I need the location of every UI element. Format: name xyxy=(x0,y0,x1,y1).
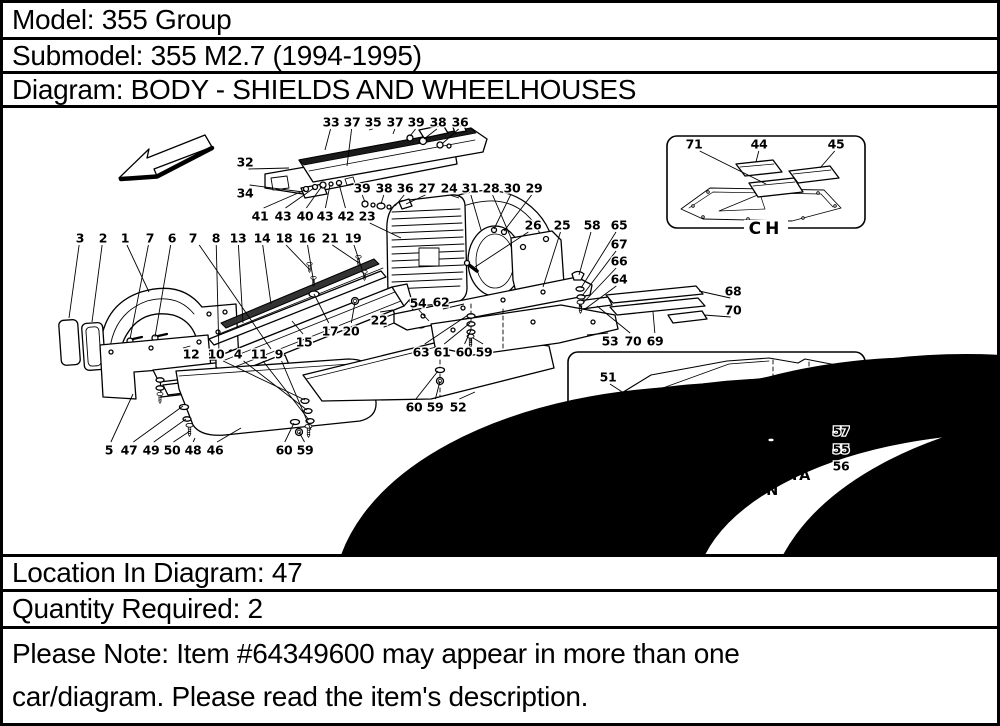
callout-54: 54 xyxy=(410,296,427,311)
callout-68: 68 xyxy=(725,284,742,299)
note-row: Please Note: Item #64349600 may appear i… xyxy=(3,629,997,723)
callout-43: 43 xyxy=(275,209,292,224)
diagram-title-text: Diagram: BODY - SHIELDS AND WHEELHOUSES xyxy=(12,74,636,106)
callout-30: 30 xyxy=(504,181,521,196)
callout-56: 56 xyxy=(833,459,850,474)
callout-29: 29 xyxy=(526,181,543,196)
callout-26: 26 xyxy=(525,218,542,233)
callout-23: 23 xyxy=(359,209,376,224)
callout-64: 64 xyxy=(611,272,628,287)
callout-53: 53 xyxy=(602,334,619,349)
callout-66: 66 xyxy=(611,254,628,269)
callout-22: 22 xyxy=(371,313,388,328)
callout-33: 33 xyxy=(323,115,340,130)
callout-39: 39 xyxy=(354,181,371,196)
catalog-page: Model: 355 Group Submodel: 355 M2.7 (199… xyxy=(0,0,1000,726)
note-text-line2: car/diagram. Please read the item's desc… xyxy=(12,675,997,718)
callout-55: 55 xyxy=(833,442,850,457)
callout-52: 52 xyxy=(450,400,467,415)
callout-7: 7 xyxy=(189,231,197,246)
model-text: Model: 355 Group xyxy=(12,4,231,36)
callout-70: 70 xyxy=(725,303,742,318)
callout-48: 48 xyxy=(185,443,202,458)
callout-32: 32 xyxy=(237,155,254,170)
callout-15: 15 xyxy=(296,335,313,350)
submodel-text: Submodel: 355 M2.7 (1994-1995) xyxy=(12,40,422,72)
callout-43: 43 xyxy=(317,209,334,224)
quantity-row: Quantity Required: 2 xyxy=(3,592,997,629)
callout-70: 70 xyxy=(625,334,642,349)
callout-50: 50 xyxy=(164,443,181,458)
callout-31: 31 xyxy=(462,181,479,196)
callout-34: 34 xyxy=(237,186,254,201)
callout-62: 62 xyxy=(433,295,450,310)
callout-71: 71 xyxy=(686,137,703,152)
callout-1: 1 xyxy=(121,231,129,246)
callout-37: 37 xyxy=(387,115,404,130)
callout-60: 60 xyxy=(276,443,293,458)
exploded-parts-diagram: 3337353739383632344143404342233938362724… xyxy=(3,108,997,554)
callout-16: 16 xyxy=(299,231,316,246)
callout-37: 37 xyxy=(344,115,361,130)
callout-40: 40 xyxy=(297,209,314,224)
callout-28: 28 xyxy=(483,181,500,196)
callout-7: 7 xyxy=(146,231,154,246)
callout-20: 20 xyxy=(343,324,360,339)
callout-6: 6 xyxy=(168,231,177,246)
callout-41: 41 xyxy=(252,209,269,224)
ch-inset-label: CH xyxy=(749,219,784,239)
callout-9: 9 xyxy=(275,347,283,362)
callout-59: 59 xyxy=(476,345,493,360)
note-text-line1: Please Note: Item #64349600 may appear i… xyxy=(12,632,997,675)
location-row: Location In Diagram: 47 xyxy=(3,557,997,592)
callout-14: 14 xyxy=(254,231,271,246)
callout-39: 39 xyxy=(408,115,425,130)
callout-60: 60 xyxy=(406,400,423,415)
location-text: Location In Diagram: 47 xyxy=(12,557,302,589)
callout-10: 10 xyxy=(208,347,225,362)
callout-65: 65 xyxy=(611,218,628,233)
callout-69: 69 xyxy=(647,334,664,349)
callout-36: 36 xyxy=(452,115,469,130)
callout-42: 42 xyxy=(338,209,355,224)
callout-57: 57 xyxy=(833,424,850,439)
callout-35: 35 xyxy=(365,115,382,130)
old-solution-title-line1: SOLUZIONE SUPERATA xyxy=(619,468,811,484)
old-solution-title-line2: OLD SOLUTION xyxy=(651,483,779,499)
callout-61: 61 xyxy=(434,345,451,360)
diagram-title-row: Diagram: BODY - SHIELDS AND WHEELHOUSES xyxy=(3,74,997,108)
direction-arrow-icon xyxy=(119,135,212,179)
callout-13: 13 xyxy=(230,231,247,246)
callout-59: 59 xyxy=(297,443,314,458)
submodel-row: Submodel: 355 M2.7 (1994-1995) xyxy=(3,40,997,74)
quantity-text: Quantity Required: 2 xyxy=(12,593,263,625)
callout-24: 24 xyxy=(441,181,458,196)
callout-58: 58 xyxy=(584,218,601,233)
callout-67: 67 xyxy=(611,237,628,252)
callout-27: 27 xyxy=(419,181,436,196)
callout-21: 21 xyxy=(322,231,339,246)
callout-60: 60 xyxy=(456,345,473,360)
callout-38: 38 xyxy=(376,181,393,196)
callout-51: 51 xyxy=(600,370,617,385)
callout-36: 36 xyxy=(397,181,414,196)
callout-5: 5 xyxy=(105,443,113,458)
callout-4: 4 xyxy=(234,347,243,362)
callout-8: 8 xyxy=(212,231,220,246)
callout-2: 2 xyxy=(99,231,107,246)
callout-45: 45 xyxy=(828,137,845,152)
callout-47: 47 xyxy=(121,443,138,458)
diagram-area: 3337353739383632344143404342233938362724… xyxy=(3,108,997,557)
callout-17: 17 xyxy=(322,324,339,339)
side-pads xyxy=(58,319,105,370)
callout-3: 3 xyxy=(76,231,84,246)
callout-38: 38 xyxy=(430,115,447,130)
callout-49: 49 xyxy=(143,443,160,458)
callout-19: 19 xyxy=(345,231,362,246)
callout-12: 12 xyxy=(183,347,200,362)
model-row: Model: 355 Group xyxy=(3,3,997,40)
callout-25: 25 xyxy=(554,218,571,233)
callout-11: 11 xyxy=(251,347,268,362)
callout-59: 59 xyxy=(427,400,444,415)
callout-44: 44 xyxy=(751,137,768,152)
callout-46: 46 xyxy=(207,443,224,458)
callout-63: 63 xyxy=(413,345,430,360)
callout-18: 18 xyxy=(276,231,293,246)
